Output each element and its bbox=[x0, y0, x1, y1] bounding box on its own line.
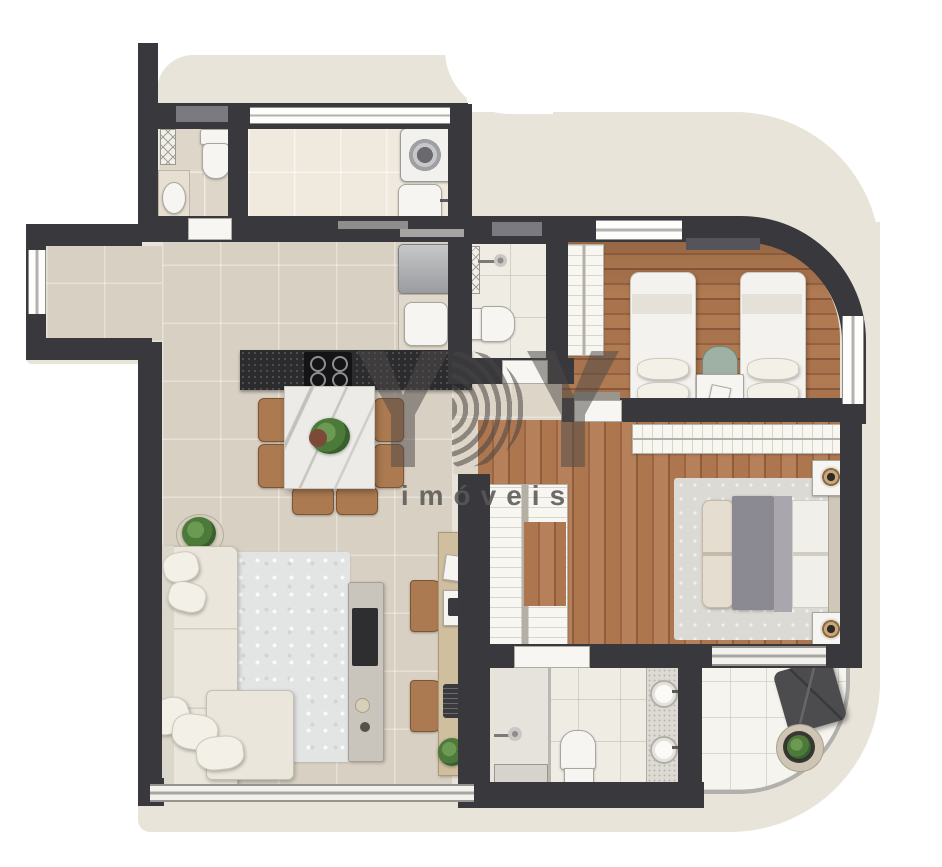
living-room-glass-doors bbox=[150, 784, 474, 802]
wall bbox=[458, 474, 490, 808]
kitchen-sink bbox=[404, 302, 448, 346]
shower-glass-line bbox=[548, 666, 551, 784]
toilet-bowl bbox=[560, 730, 596, 770]
dining-chair bbox=[292, 487, 334, 515]
wall bbox=[26, 338, 152, 360]
wall bbox=[472, 782, 704, 808]
terrace-plant bbox=[787, 735, 811, 759]
vanity-sink bbox=[650, 680, 678, 708]
entry-niche-floor bbox=[46, 246, 162, 342]
master-bathroom-door-threshold bbox=[514, 646, 590, 668]
washbasin bbox=[162, 182, 186, 214]
watermark-subtitle: imóveis bbox=[370, 480, 606, 512]
watermark-letter-y bbox=[357, 351, 449, 467]
toilet-bowl bbox=[481, 306, 515, 342]
console-decor bbox=[360, 722, 370, 732]
shaft-hatch bbox=[160, 129, 176, 165]
centerpiece-pot bbox=[309, 429, 327, 447]
double-bed-throw bbox=[774, 496, 792, 612]
service-sliding-door bbox=[338, 221, 408, 229]
refrigerator bbox=[398, 244, 454, 294]
powder-room-door-threshold bbox=[188, 218, 232, 240]
double-bed-mattress bbox=[792, 500, 832, 608]
watermark-letter-b bbox=[452, 351, 524, 467]
tv bbox=[352, 608, 378, 666]
terrace-sliding-door bbox=[712, 646, 826, 666]
service-sliding-door bbox=[400, 229, 464, 237]
bedside-lamp bbox=[820, 466, 842, 488]
cooktop-burner bbox=[310, 356, 326, 372]
air-conditioner-unit bbox=[686, 238, 760, 250]
social-bathroom-vent bbox=[492, 222, 542, 236]
floor-plan: imóveis bbox=[0, 0, 942, 867]
bedroom-2-top-window bbox=[596, 220, 682, 240]
wall bbox=[840, 400, 862, 652]
shower-head bbox=[494, 254, 507, 267]
double-bed-blanket bbox=[732, 496, 774, 610]
wall bbox=[138, 43, 158, 229]
bedroom-2-side-window bbox=[842, 316, 864, 404]
double-bed-pillows bbox=[702, 500, 734, 608]
bedside-lamp bbox=[820, 618, 842, 640]
powder-room-vent bbox=[176, 106, 228, 122]
shower-head bbox=[508, 727, 522, 741]
wall bbox=[228, 105, 248, 227]
entry-niche-window bbox=[28, 250, 46, 314]
toilet-bowl bbox=[202, 143, 230, 179]
vanity-sink bbox=[650, 736, 678, 764]
console-decor bbox=[355, 698, 370, 713]
service-window bbox=[250, 107, 450, 124]
wall bbox=[138, 342, 162, 790]
watermark-logo bbox=[352, 350, 624, 468]
closet-floor-notch bbox=[524, 522, 566, 606]
watermark-letter-y bbox=[527, 351, 619, 467]
potted-plant bbox=[182, 517, 216, 549]
cooktop-burner bbox=[332, 356, 348, 372]
wardrobe bbox=[632, 424, 848, 454]
washing-machine bbox=[400, 128, 454, 182]
